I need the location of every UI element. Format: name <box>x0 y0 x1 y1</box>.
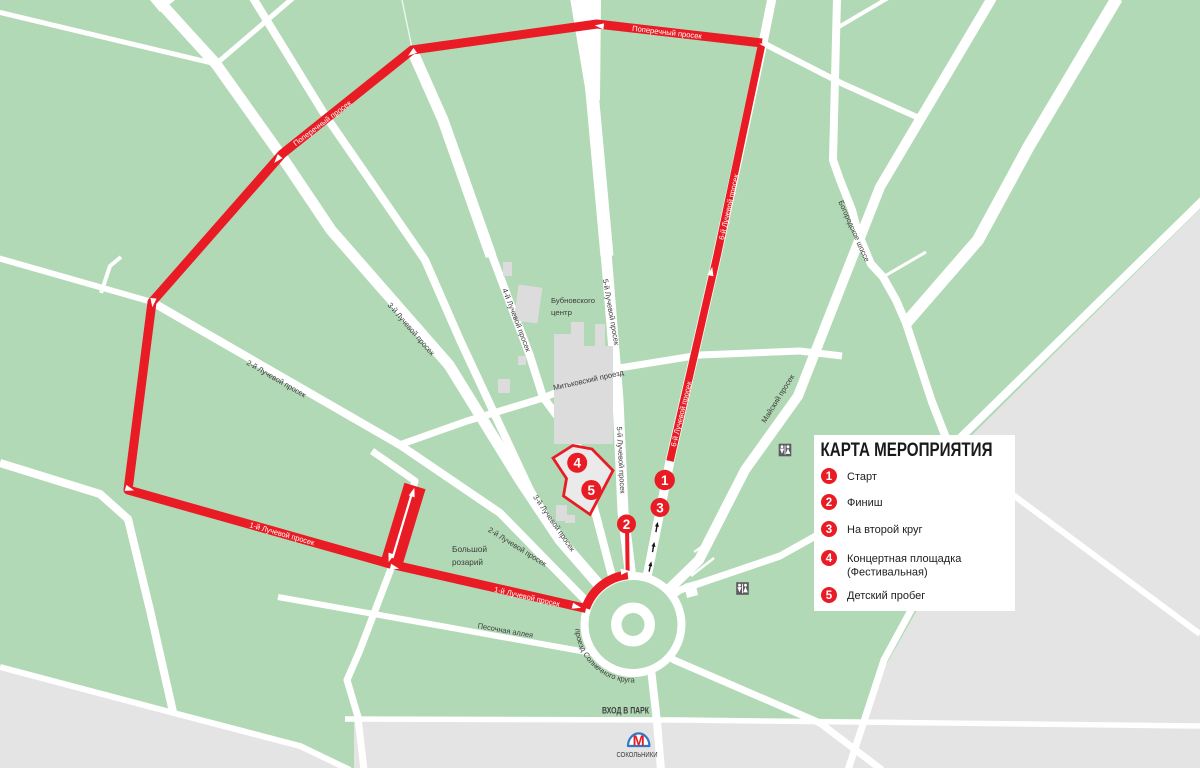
svg-text:Старт: Старт <box>847 471 877 483</box>
svg-text:На второй круг: На второй круг <box>847 524 923 536</box>
svg-text:Детский пробег: Детский пробег <box>847 590 925 602</box>
svg-text:КАРТА МЕРОПРИЯТИЯ: КАРТА МЕРОПРИЯТИЯ <box>821 440 993 461</box>
svg-text:СОКОЛЬНИКИ: СОКОЛЬНИКИ <box>617 752 658 759</box>
svg-text:центр: центр <box>551 308 572 317</box>
svg-text:5: 5 <box>588 483 596 498</box>
svg-text:Финиш: Финиш <box>847 497 883 509</box>
svg-text:Бубновского: Бубновского <box>551 296 595 305</box>
svg-text:Концертная площадка: Концертная площадка <box>847 553 962 565</box>
svg-text:розарий: розарий <box>452 557 483 567</box>
svg-text:ВХОД В ПАРК: ВХОД В ПАРК <box>602 706 649 716</box>
svg-text:3: 3 <box>656 500 664 515</box>
svg-text:5: 5 <box>826 590 833 602</box>
svg-text:1: 1 <box>661 473 669 488</box>
svg-text:1: 1 <box>826 471 833 483</box>
svg-text:(Фестивальная): (Фестивальная) <box>847 567 928 579</box>
svg-text:4: 4 <box>826 553 833 565</box>
svg-text:М: М <box>633 733 645 749</box>
svg-text:2: 2 <box>623 517 631 532</box>
svg-text:4: 4 <box>573 456 581 471</box>
svg-text:3: 3 <box>826 524 832 536</box>
svg-text:2: 2 <box>826 497 832 509</box>
svg-text:Большой: Большой <box>452 544 487 554</box>
